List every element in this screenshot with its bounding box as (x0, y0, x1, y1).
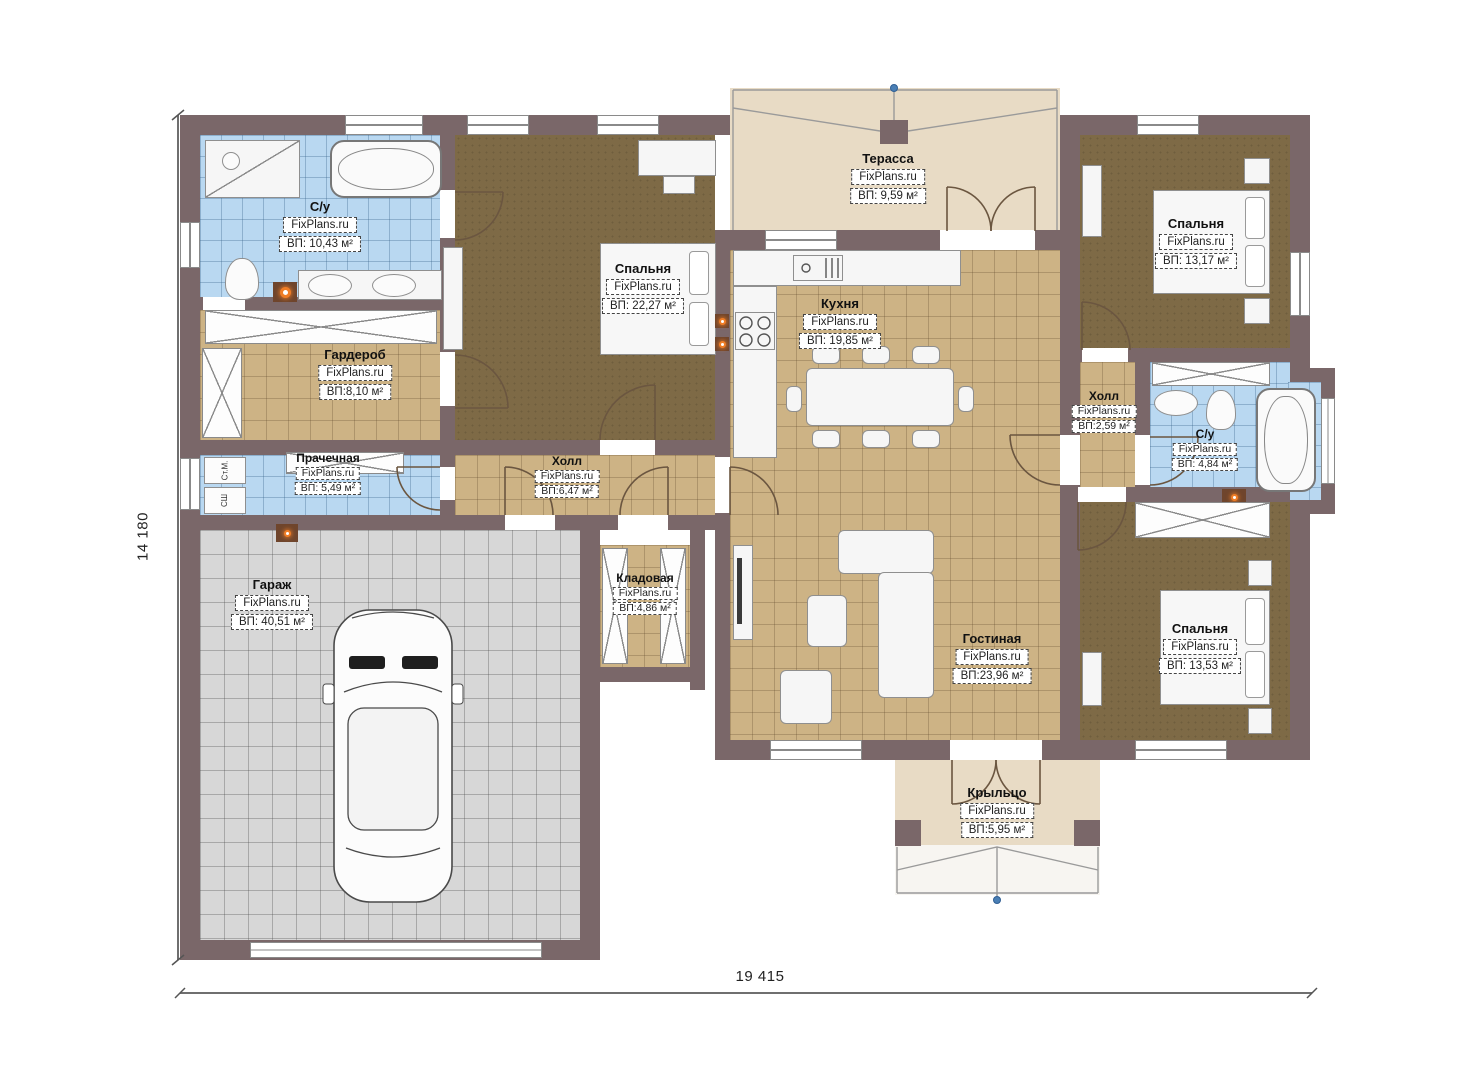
room-area: ВП: 19,85 м² (799, 333, 881, 349)
sofa (838, 530, 934, 574)
nightstand (1244, 158, 1270, 184)
stove-icon (735, 312, 775, 350)
door-opening (440, 190, 455, 238)
window (1137, 115, 1199, 135)
nightstand (1248, 708, 1272, 734)
room-name: Кладовая (613, 572, 678, 585)
door-opening (1082, 348, 1128, 362)
sofa (878, 572, 934, 698)
dimension-line-vertical (177, 115, 179, 960)
room-label-kuhnya: Кухня FixPlans.ru ВП: 19,85 м² (799, 297, 881, 349)
room-name: С/у (279, 200, 361, 214)
watermark: FixPlans.ru (1173, 443, 1238, 456)
door-opening (618, 515, 668, 530)
room-label-garazh: Гараж FixPlans.ru ВП: 40,51 м² (231, 578, 313, 630)
watermark: FixPlans.ru (1072, 405, 1137, 418)
chair (812, 430, 840, 448)
room-name: Холл (1072, 390, 1137, 403)
room-label-spalnya2: Спальня FixPlans.ru ВП: 13,17 м² (1155, 217, 1237, 269)
sink-icon (372, 274, 416, 297)
room-area: ВП: 13,53 м² (1159, 658, 1241, 674)
wall (690, 530, 705, 690)
window (597, 115, 659, 135)
room-label-holl2: Холл FixPlans.ru ВП:2,59 м² (1072, 390, 1137, 433)
watermark: FixPlans.ru (1163, 639, 1237, 655)
room-name: Прачечная (295, 452, 361, 465)
room-name: Гостиная (953, 632, 1032, 646)
room-area: ВП:8,10 м² (319, 384, 391, 400)
wall (600, 667, 690, 682)
wall (440, 455, 455, 467)
room-area: ВП: 4,84 м² (1172, 458, 1238, 471)
bathtub-icon (1256, 388, 1316, 492)
watermark: FixPlans.ru (235, 595, 309, 611)
dresser (1082, 165, 1102, 237)
dresser (443, 247, 463, 350)
room-name: Спальня (1155, 217, 1237, 231)
chair (862, 430, 890, 448)
room-area: ВП: 40,51 м² (231, 614, 313, 630)
room-name: Холл (535, 455, 600, 468)
boiler-icon (715, 337, 729, 351)
window (770, 740, 862, 760)
door-opening (505, 515, 555, 530)
watermark: FixPlans.ru (613, 587, 678, 600)
boiler-icon (273, 282, 297, 302)
shower-icon (205, 140, 300, 198)
armchair (780, 670, 832, 724)
terrace-post (880, 120, 908, 144)
porch-post (1074, 820, 1100, 846)
room-name: Спальня (602, 262, 684, 276)
room-name: Гардероб (318, 348, 392, 362)
window (180, 222, 200, 268)
toilet-icon (225, 258, 259, 300)
room-name: Спальня (1159, 622, 1241, 636)
room-area: ВП: 10,43 м² (279, 236, 361, 252)
watermark: FixPlans.ru (535, 470, 600, 483)
door-opening (1060, 435, 1080, 485)
room-label-garderob: Гардероб FixPlans.ru ВП:8,10 м² (318, 348, 392, 400)
toilet-icon (1206, 390, 1236, 430)
closet-icon (1152, 362, 1270, 386)
wardrobe-cabinet (638, 140, 716, 176)
room-area: ВП:23,96 м² (953, 668, 1032, 684)
wall (1290, 500, 1310, 760)
desk (663, 176, 695, 194)
room-area: ВП: 22,27 м² (602, 298, 684, 314)
watermark: FixPlans.ru (955, 649, 1029, 665)
tv-icon (737, 558, 742, 624)
door-opening-terrace (940, 230, 1035, 250)
wall (1290, 115, 1310, 370)
room-area: ВП:6,47 м² (535, 485, 599, 498)
door-opening (1135, 435, 1150, 485)
room-label-su2: С/у FixPlans.ru ВП: 4,84 м² (1172, 428, 1238, 471)
porch-post (895, 820, 921, 846)
dimension-width: 19 415 (700, 968, 820, 985)
room-area: ВП: 13,17 м² (1155, 253, 1237, 269)
window (765, 230, 837, 250)
sink-icon (1154, 390, 1198, 416)
chair (786, 386, 802, 412)
room-label-krylco: Крыльцо FixPlans.ru ВП:5,95 м² (960, 786, 1034, 838)
room-label-holl1: Холл FixPlans.ru ВП:6,47 м² (535, 455, 600, 498)
shower-drain-icon (222, 152, 240, 170)
room-area: ВП: 5,49 м² (295, 482, 361, 495)
window (345, 115, 423, 135)
door-opening (715, 457, 730, 513)
wall (1290, 500, 1335, 514)
boiler-icon (276, 524, 298, 542)
watermark: FixPlans.ru (803, 314, 877, 330)
bathtub-icon (330, 140, 442, 198)
kitchen-sink-icon (793, 255, 843, 281)
door-opening (600, 440, 655, 455)
garage-door (250, 942, 542, 958)
coffee-table (807, 595, 847, 647)
room-area: ВП:5,95 м² (961, 822, 1033, 838)
dresser (1082, 652, 1102, 706)
kitchen-counter (733, 250, 961, 286)
watermark: FixPlans.ru (283, 217, 357, 233)
watermark: FixPlans.ru (318, 365, 392, 381)
room-label-su1: С/у FixPlans.ru ВП: 10,43 м² (279, 200, 361, 252)
room-label-gostinaya: Гостиная FixPlans.ru ВП:23,96 м² (953, 632, 1032, 684)
watermark: FixPlans.ru (606, 279, 680, 295)
tv-console (733, 545, 753, 640)
room-name: Терасса (850, 152, 926, 166)
room-name: Крыльцо (960, 786, 1034, 800)
room-label-spalnya1: Спальня FixPlans.ru ВП: 22,27 м² (602, 262, 684, 314)
nightstand (1248, 560, 1272, 586)
porch-steps (895, 845, 1100, 895)
room-area: ВП:4,86 м² (613, 602, 677, 615)
closet-icon (1135, 502, 1270, 538)
room-name: Гараж (231, 578, 313, 592)
room-label-kladovaya: Кладовая FixPlans.ru ВП:4,86 м² (613, 572, 678, 615)
chair (912, 430, 940, 448)
door-opening-porch (950, 740, 1042, 760)
door-opening (1078, 487, 1126, 502)
washing-machine-icon: Ст.М. (204, 457, 246, 484)
watermark: FixPlans.ru (296, 467, 361, 480)
window (1290, 252, 1310, 316)
room-name: С/у (1172, 428, 1238, 441)
drying-cabinet-icon: СШ (204, 487, 246, 514)
wall (440, 500, 455, 530)
room-area: ВП:2,59 м² (1072, 420, 1136, 433)
room-label-terassa: Терасса FixPlans.ru ВП: 9,59 м² (850, 152, 926, 204)
sink-icon (308, 274, 352, 297)
closet-icon (202, 348, 242, 438)
boiler-icon (715, 314, 729, 328)
wall (580, 530, 600, 960)
room-name: Кухня (799, 297, 881, 311)
window (467, 115, 529, 135)
dimension-height: 14 180 (135, 502, 152, 572)
window (180, 458, 200, 510)
watermark: FixPlans.ru (960, 803, 1034, 819)
window (1135, 740, 1227, 760)
dimension-line-horizontal (180, 992, 1312, 994)
chair (958, 386, 974, 412)
chair (912, 346, 940, 364)
watermark: FixPlans.ru (851, 169, 925, 185)
door-opening (440, 352, 455, 406)
watermark: FixPlans.ru (1159, 234, 1233, 250)
room-area: ВП: 9,59 м² (850, 188, 926, 204)
room-label-spalnya3: Спальня FixPlans.ru ВП: 13,53 м² (1159, 622, 1241, 674)
window (1321, 398, 1335, 484)
dining-table (806, 368, 954, 426)
floor-plan-canvas: Ст.М. СШ (0, 0, 1474, 1080)
nightstand (1244, 298, 1270, 324)
closet-icon (205, 310, 437, 344)
room-label-prachechnaya: Прачечная FixPlans.ru ВП: 5,49 м² (295, 452, 361, 495)
